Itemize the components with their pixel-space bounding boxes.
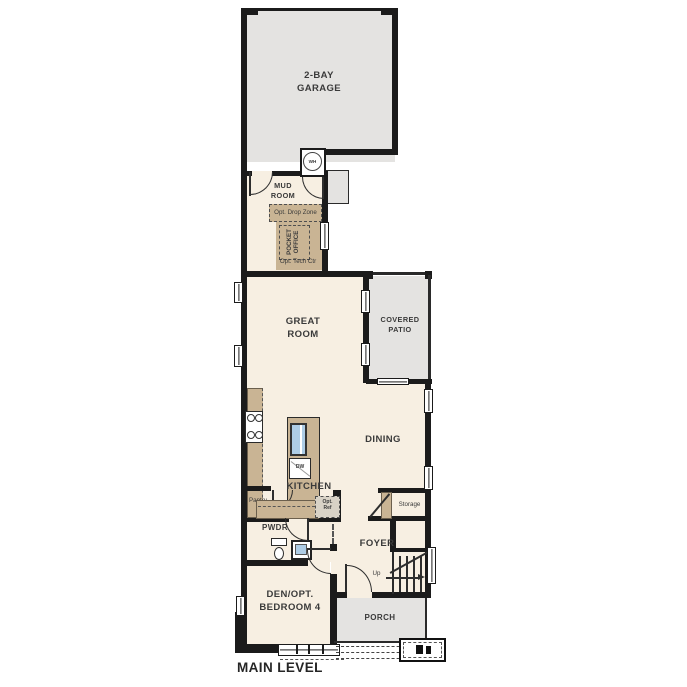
den-wall-bottom <box>235 644 280 653</box>
window-mullion <box>379 381 407 382</box>
window-mullion <box>365 345 366 364</box>
pwdr-sink-basin <box>295 544 307 555</box>
window-mullion <box>428 468 429 488</box>
patio-edge-top <box>366 272 432 275</box>
porch-label: PORCH <box>352 613 408 624</box>
window-divider <box>296 645 298 654</box>
patio-slider-1 <box>361 290 370 313</box>
great-room-window-1 <box>234 282 243 303</box>
window-mullion <box>428 391 429 411</box>
stair-tread <box>399 556 401 592</box>
mud-room-label: MUD ROOM <box>258 181 308 201</box>
den-wall-right <box>330 574 337 645</box>
window-mullion <box>238 347 239 365</box>
dining-label: DINING <box>359 434 407 447</box>
patio-slider-2 <box>361 343 370 366</box>
side-landing <box>326 170 349 204</box>
garage-wall-right <box>392 8 398 155</box>
cased-opening <box>332 524 334 544</box>
great-room-window-2 <box>234 345 243 367</box>
stair-stringer <box>392 552 394 594</box>
counter-dash-line <box>258 506 315 507</box>
opt-ref-label: Opt. Ref <box>315 500 340 512</box>
pantry-wall-stub <box>243 486 271 491</box>
sink-divider <box>300 425 302 454</box>
porch-edge-right <box>425 598 427 643</box>
stairs-up-label: Up <box>369 570 384 577</box>
cooktop-burner <box>255 431 263 439</box>
kitchen-sink <box>290 423 307 456</box>
stairs-arrow-head <box>418 574 425 580</box>
dining-window-1 <box>424 389 433 413</box>
den-label: DEN/OPT. BEDROOM 4 <box>249 589 331 615</box>
cooktop-burner <box>255 414 263 422</box>
kitchen-counter-bottom <box>256 500 319 519</box>
window-mullion <box>238 284 239 301</box>
toilet-bowl <box>274 547 284 560</box>
window-mullion <box>240 598 241 614</box>
window-mullion <box>324 224 325 248</box>
garage-door-line <box>241 8 398 11</box>
garage-wall-bottom <box>324 149 398 155</box>
mud-room-wall-top-b <box>272 171 302 176</box>
dining-window-2 <box>424 466 433 490</box>
paver-block <box>426 646 431 654</box>
foyer-wall-stub <box>330 544 337 551</box>
exterior-wall-left <box>241 8 247 645</box>
cooktop-burner <box>247 431 255 439</box>
garage-label: 2-BAY GARAGE <box>280 70 358 96</box>
stair-window <box>427 547 436 584</box>
great-room-label: GREAT ROOM <box>269 316 337 342</box>
covered-patio-label: COVERED PATIO <box>371 315 429 335</box>
den-window-left <box>236 596 245 616</box>
stairs-arrow <box>386 577 419 579</box>
great-room-wall-top <box>241 271 368 277</box>
window-divider <box>308 645 310 654</box>
foyer-label: FOYER <box>341 538 413 551</box>
storage-wall-bottom <box>368 516 425 521</box>
toilet-tank <box>271 538 287 546</box>
stair-tread <box>413 556 415 592</box>
level-title: MAIN LEVEL <box>237 660 387 675</box>
pwdr-wall-bottom <box>241 560 308 566</box>
water-heater-label: WH <box>303 159 322 165</box>
dishwasher-label: DW <box>289 465 311 471</box>
storage-label: Storage <box>392 501 427 508</box>
paver-block <box>416 645 423 654</box>
den-bay-window <box>278 644 340 656</box>
patio-notch-left <box>366 271 373 279</box>
pocket-office-window <box>320 222 329 250</box>
foyer-wall-bottom-right <box>372 592 427 598</box>
window-divider <box>322 645 324 654</box>
floor-plan: WH MUD ROOM Opt. Drop Zone POCKET OFFICE… <box>0 0 687 687</box>
foyer-wall-bottom-left <box>334 592 347 598</box>
window-mullion <box>431 549 432 582</box>
patio-opening <box>377 378 409 385</box>
window-mullion <box>365 292 366 311</box>
cooktop-burner <box>247 414 255 422</box>
tech-center-label: Opt. Tech Ctr <box>274 258 322 265</box>
